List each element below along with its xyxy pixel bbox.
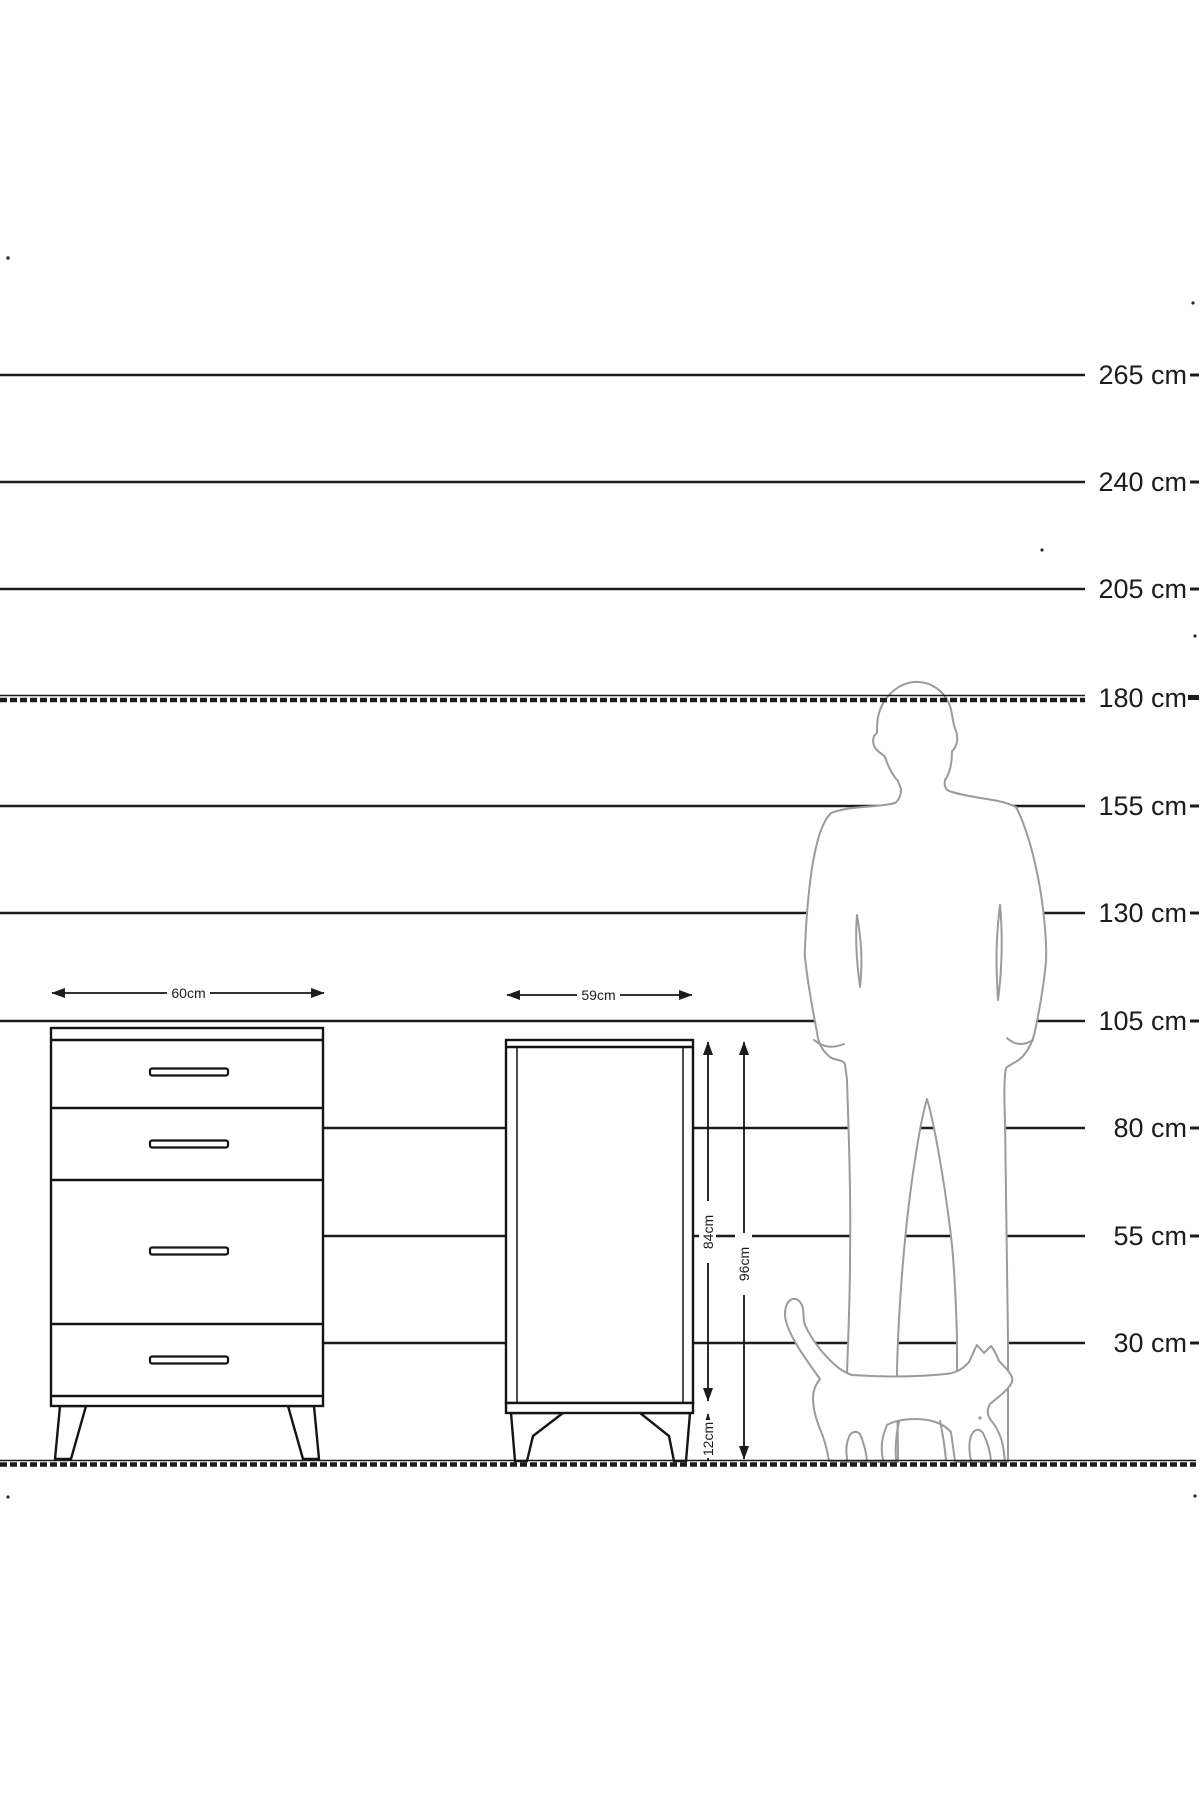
height-line-55: 55 cm: [324, 1221, 1199, 1251]
cabinet-width-dimension: 59cm: [507, 987, 692, 1003]
height-label-30: 30 cm: [1113, 1328, 1187, 1358]
height-line-80: 80 cm: [324, 1113, 1199, 1143]
chest-width-label: 60cm: [171, 985, 205, 1001]
chest-of-drawers: [51, 1028, 323, 1459]
small-cabinet: [506, 1040, 693, 1461]
artifact-dot: [1193, 634, 1196, 637]
scale-tick: [1190, 1342, 1199, 1345]
chest-handle-4: [150, 1357, 228, 1364]
height-label-80: 80 cm: [1113, 1113, 1187, 1143]
height-label-180: 180 cm: [1098, 683, 1187, 713]
artifact-dot: [1040, 548, 1043, 551]
chest-handle-3: [150, 1248, 228, 1255]
cabinet-body-height-label: 84cm: [700, 1215, 716, 1249]
height-line-180: [0, 696, 1085, 701]
cabinet-width-label: 59cm: [581, 987, 615, 1003]
cabinet-left-leg: [511, 1413, 563, 1461]
chest-width-dimension: 60cm: [52, 985, 324, 1001]
cabinet-bottom-strip: [506, 1403, 693, 1413]
scale-tick: [1190, 1020, 1199, 1023]
height-label-105: 105 cm: [1098, 1006, 1187, 1036]
scale-tick: [1190, 481, 1199, 484]
scale-tick: [1190, 588, 1199, 591]
scale-tick: [1188, 695, 1199, 700]
scale-tick: [1190, 1235, 1199, 1238]
height-label-240: 240 cm: [1098, 467, 1187, 497]
scale-tick: [1190, 1127, 1199, 1130]
person-body-outline: [805, 682, 1046, 1462]
scale-tick: [1190, 805, 1199, 808]
cabinet-right-leg: [640, 1413, 690, 1461]
cat-fleck: [978, 1416, 981, 1419]
scale-tick: [1190, 912, 1199, 915]
chest-left-leg: [55, 1406, 86, 1459]
chest-right-leg: [288, 1406, 319, 1459]
height-line-240: 240 cm: [0, 467, 1199, 497]
cabinet-body: [506, 1040, 693, 1403]
height-line-180-label: 180 cm: [1098, 683, 1199, 713]
height-label-265: 265 cm: [1098, 360, 1187, 390]
height-label-205: 205 cm: [1098, 574, 1187, 604]
artifact-dot: [6, 1495, 9, 1498]
height-line-30: 30 cm: [324, 1328, 1199, 1358]
cabinet-leg-height-label: 12cm: [700, 1422, 716, 1456]
chest-handle-1: [150, 1069, 228, 1076]
ground-line: [0, 1461, 1196, 1465]
artifact-dot: [6, 256, 9, 259]
height-label-155: 155 cm: [1098, 791, 1187, 821]
artifact-dot: [1193, 1494, 1196, 1497]
artifact-dot: [1191, 301, 1194, 304]
diagram-svg: 265 cm 240 cm 205 cm 180 cm 155 cm 130 c…: [0, 0, 1200, 1800]
height-label-130: 130 cm: [1098, 898, 1187, 928]
chest-body: [51, 1028, 323, 1406]
person-silhouette: [805, 682, 1046, 1462]
cabinet-height-dimensions: 84cm 12cm 96cm: [699, 1042, 752, 1460]
scale-tick: [1190, 374, 1199, 377]
height-line-265: 265 cm: [0, 360, 1199, 390]
size-comparison-diagram: 265 cm 240 cm 205 cm 180 cm 155 cm 130 c…: [0, 0, 1200, 1800]
chest-handle-2: [150, 1141, 228, 1148]
height-line-205: 205 cm: [0, 574, 1199, 604]
cabinet-total-height-label: 96cm: [736, 1247, 752, 1281]
height-label-55: 55 cm: [1113, 1221, 1187, 1251]
